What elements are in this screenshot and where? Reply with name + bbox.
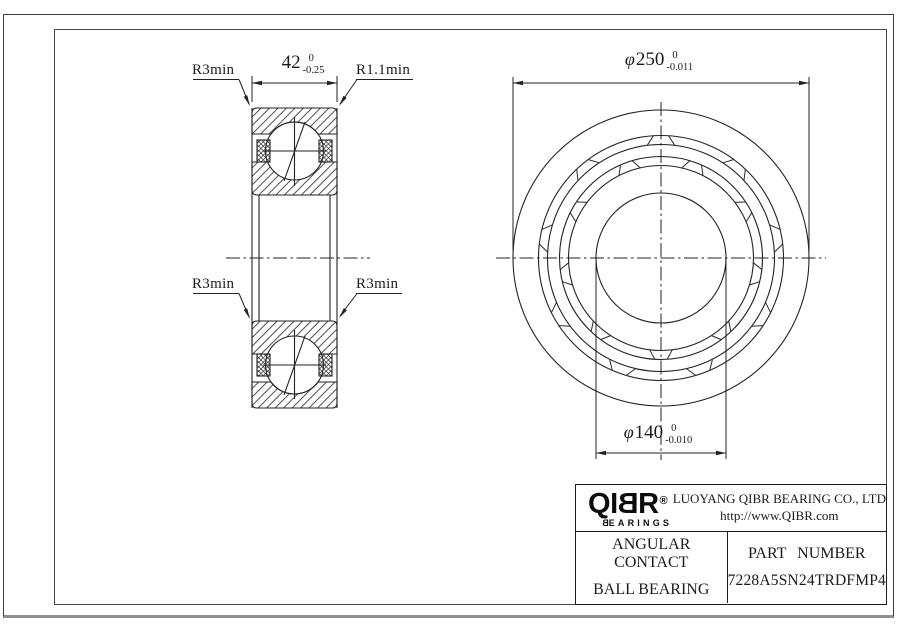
product-line2: BALL BEARING	[576, 581, 727, 599]
cage-section	[257, 354, 270, 376]
logo-letter: Q	[588, 488, 610, 520]
tolerance-upper: 0	[666, 50, 693, 62]
dim-outer-value: 250	[636, 50, 665, 69]
label-r3min-bottom-right: R3min	[356, 276, 398, 293]
company-logo: QIBR® BEARINGS	[576, 485, 673, 531]
cage-section	[319, 354, 332, 376]
label-r1-1min-top-right: R1.1min	[356, 62, 410, 79]
engineering-drawing-page: R3min R1.1min R3min R3min 42 0 -0.25 φ 2…	[0, 0, 900, 636]
dim-text-outer-250: φ 250 0 -0.011	[625, 50, 693, 74]
cage-section	[257, 140, 270, 162]
registered-trademark-symbol: ®	[660, 495, 668, 507]
logo-subtext-letter: B	[599, 518, 609, 528]
dim-bore-value: 140	[635, 423, 664, 442]
company-name: LUOYANG QIBR BEARING CO., LTD	[673, 491, 886, 508]
tolerance-upper: 0	[303, 53, 325, 65]
company-website: http://www.QIBR.com	[673, 508, 886, 525]
dim-width-value: 42	[282, 53, 301, 72]
logo-letter: R	[638, 488, 658, 520]
logo-letter: I	[610, 488, 618, 520]
tolerance-lower: -0.011	[666, 62, 693, 74]
product-line1: ANGULAR CONTACT	[576, 536, 727, 572]
front-view	[496, 102, 826, 460]
logo-wordmark: QIBR®	[588, 488, 673, 518]
dim-text-width-42: 42 0 -0.25	[282, 53, 325, 77]
part-number-value: 7228A5SN24TRDFMP4	[728, 572, 886, 590]
label-r3min-top-left: R3min	[192, 62, 234, 79]
diameter-symbol: φ	[624, 423, 634, 442]
dim-outer-tolerance: 0 -0.011	[666, 50, 693, 74]
cross-section-view	[226, 108, 370, 408]
product-description-cell: ANGULAR CONTACT BALL BEARING	[576, 532, 728, 603]
cage-section	[319, 140, 332, 162]
part-number-label: PART NUMBER	[728, 545, 886, 563]
dim-width-42	[252, 76, 337, 102]
company-info: LUOYANG QIBR BEARING CO., LTD http://www…	[673, 485, 886, 531]
dim-bore-tolerance: 0 -0.010	[665, 423, 692, 447]
tolerance-lower: -0.25	[303, 65, 325, 77]
title-block-detail-row: ANGULAR CONTACT BALL BEARING PART NUMBER…	[576, 532, 886, 603]
dim-width-tolerance: 0 -0.25	[303, 53, 325, 77]
tolerance-upper: 0	[665, 423, 692, 435]
diameter-symbol: φ	[625, 50, 635, 69]
title-block-header-row: QIBR® BEARINGS LUOYANG QIBR BEARING CO.,…	[576, 485, 886, 532]
part-number-cell: PART NUMBER 7228A5SN24TRDFMP4	[728, 532, 886, 603]
logo-letter: B	[618, 491, 638, 518]
dim-text-bore-140: φ 140 0 -0.010	[624, 423, 693, 447]
tolerance-lower: -0.010	[665, 435, 692, 447]
label-r3min-bottom-left: R3min	[192, 276, 234, 293]
title-block: QIBR® BEARINGS LUOYANG QIBR BEARING CO.,…	[575, 484, 887, 605]
